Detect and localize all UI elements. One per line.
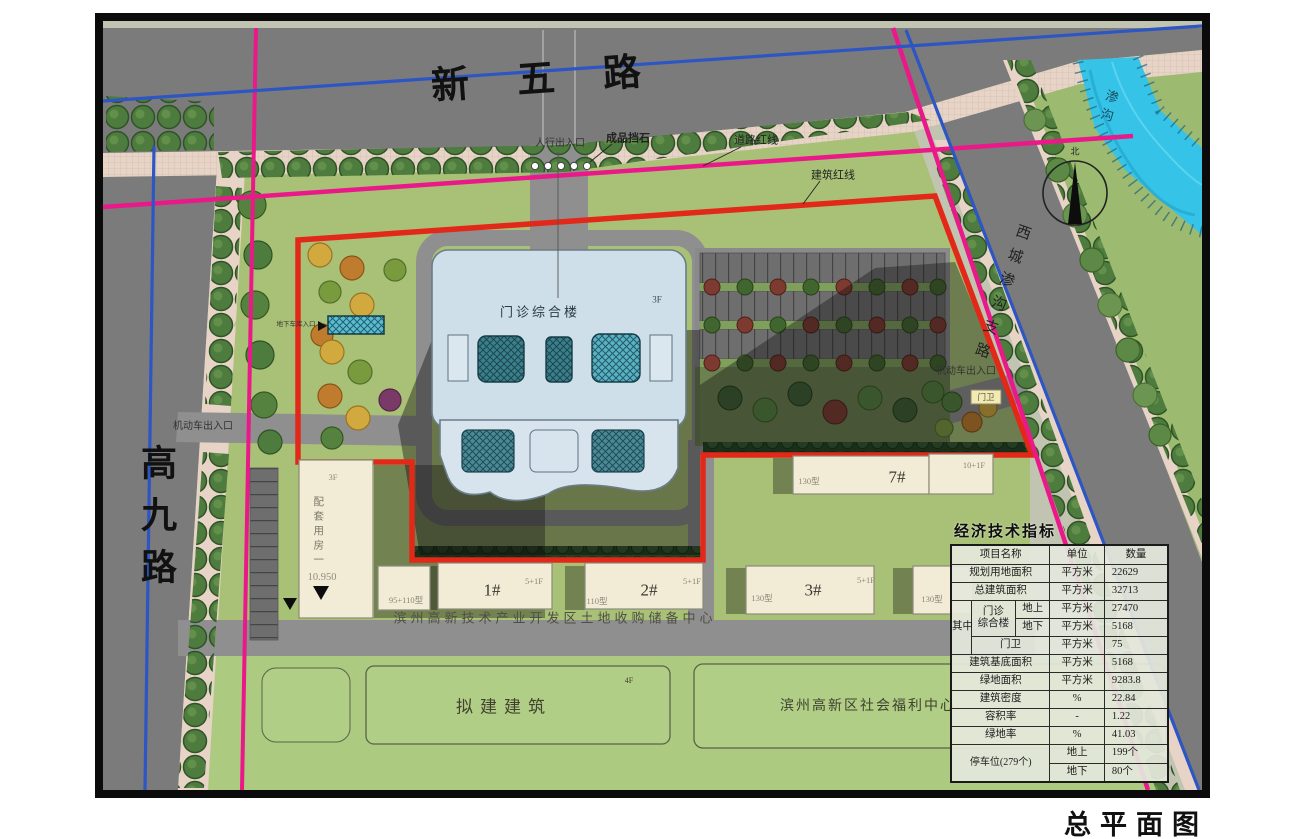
stone-barrier-label: 成品挡石 bbox=[606, 134, 650, 145]
indicator-table: 经济技术指标 项目名称 单位 数量 规划用地面积 平方米 22629 总建筑面积… bbox=[950, 520, 1170, 783]
main-building-label: 门诊综合楼 bbox=[500, 306, 580, 319]
building-7-spec: 10+1F bbox=[963, 461, 985, 470]
building-red-line-label: 建筑红线 bbox=[811, 171, 855, 182]
table-row: 绿地率 % 41.03 bbox=[951, 726, 1168, 744]
road-name-west: 高九路 bbox=[138, 444, 174, 600]
welfare-center-label: 滨州高新区社会福利中心 bbox=[780, 700, 956, 714]
pedestrian-entrance-label: 人行出入口 bbox=[535, 139, 585, 149]
vehicle-entrance-west-label: 机动车出入口 bbox=[173, 422, 233, 432]
building-2-type: 110型 bbox=[587, 597, 608, 606]
table-row: 门卫 平方米 75 bbox=[951, 636, 1168, 654]
table-row: 其中 门诊 综合楼 地上 平方米 27470 bbox=[951, 600, 1168, 618]
building-7-number: 7# bbox=[889, 469, 906, 486]
garage-ramp bbox=[318, 316, 384, 334]
building-2-spec: 5+1F bbox=[683, 577, 701, 586]
col-header-unit: 单位 bbox=[1050, 545, 1104, 564]
drawing-caption: 总平面图 bbox=[1030, 803, 1208, 839]
proposed-building-floors: 4F bbox=[625, 677, 633, 685]
building-7-type: 130型 bbox=[798, 477, 819, 486]
table-row: 总建筑面积 平方米 32713 bbox=[951, 582, 1168, 600]
clinic-cell: 门诊 综合楼 bbox=[971, 600, 1015, 636]
table-row: 规划用地面积 平方米 22629 bbox=[951, 564, 1168, 582]
landbank-center-label: 滨州高新技术产业开发区土地收购储备中心 bbox=[393, 612, 716, 625]
col-header-name: 项目名称 bbox=[951, 545, 1050, 564]
among-cell: 其中 bbox=[951, 600, 971, 654]
parking-cell: 停车位(279个) bbox=[951, 744, 1050, 782]
building-1-spec: 5+1F bbox=[525, 577, 543, 586]
table-row: 容积率 - 1.22 bbox=[951, 708, 1168, 726]
building-1-number: 1# bbox=[484, 582, 501, 599]
support-elevation: 10.950 bbox=[308, 573, 337, 584]
table-row: 绿地面积 平方米 9283.8 bbox=[951, 672, 1168, 690]
west-parking-stalls bbox=[250, 468, 278, 640]
building-2-number: 2# bbox=[641, 582, 658, 599]
building-3-number: 3# bbox=[805, 582, 822, 599]
support-building-footprint bbox=[299, 460, 373, 618]
garage-entrance-label: 地下车库入口 bbox=[277, 322, 316, 329]
main-building-floors: 3F bbox=[652, 296, 662, 305]
building-3-type: 130型 bbox=[751, 594, 772, 603]
table-row: 项目名称 单位 数量 bbox=[951, 545, 1168, 564]
building-1-type: 95+110型 bbox=[389, 596, 423, 605]
road-red-line-label: 道路红线 bbox=[734, 136, 778, 147]
col-header-qty: 数量 bbox=[1104, 545, 1168, 564]
support-building-floors: 3F bbox=[329, 473, 338, 482]
indicator-table-title: 经济技术指标 bbox=[950, 520, 1170, 544]
building-4-type: 130型 bbox=[921, 595, 942, 604]
proposed-building-label: 拟建建筑 bbox=[456, 699, 552, 716]
building-3-spec: 5+1F bbox=[857, 576, 875, 585]
gate-guard-label: 门卫 bbox=[977, 393, 994, 402]
north-char: 北 bbox=[1070, 148, 1079, 157]
table-row: 停车位(279个) 地上 199个 bbox=[951, 744, 1168, 763]
table-row: 建筑基底面积 平方米 5168 bbox=[951, 654, 1168, 672]
vehicle-entrance-east-label: 机动车出入口 bbox=[936, 367, 996, 377]
table-row: 建筑密度 % 22.84 bbox=[951, 690, 1168, 708]
site-plan-sheet: 新五路 高九路 西城渗沟支路 渗沟 北 人行出入口 成品挡石 道路红线 建筑红线… bbox=[0, 0, 1300, 839]
support-building-label: 配套用房一 bbox=[312, 496, 323, 569]
